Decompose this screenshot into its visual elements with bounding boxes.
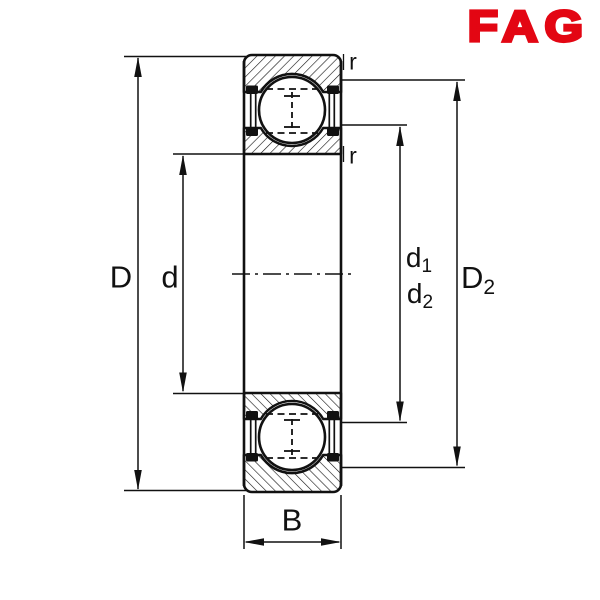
label-width-B: B [282, 505, 303, 536]
dimension-D [124, 57, 246, 491]
label-outer-diameter-D: D [110, 262, 132, 293]
label-chamfer-r-top: r [349, 51, 357, 74]
fag-logo-graphic: FAG [448, 6, 592, 50]
label-d1: d1 [406, 244, 432, 276]
bearing-section-top [244, 55, 341, 154]
bearing-drawing-page: D d d1 d2 D2 B r r FAG [0, 0, 600, 600]
fag-logo-text: FAG [468, 6, 590, 50]
label-d2: d2 [407, 280, 433, 312]
dimension-D2 [341, 80, 465, 468]
bearing-section-bottom [244, 393, 341, 492]
fag-logo: FAG [448, 6, 592, 50]
label-chamfer-r-bottom: r [349, 145, 357, 168]
label-bore-diameter-d: d [161, 262, 178, 293]
label-D2: D2 [461, 262, 495, 298]
